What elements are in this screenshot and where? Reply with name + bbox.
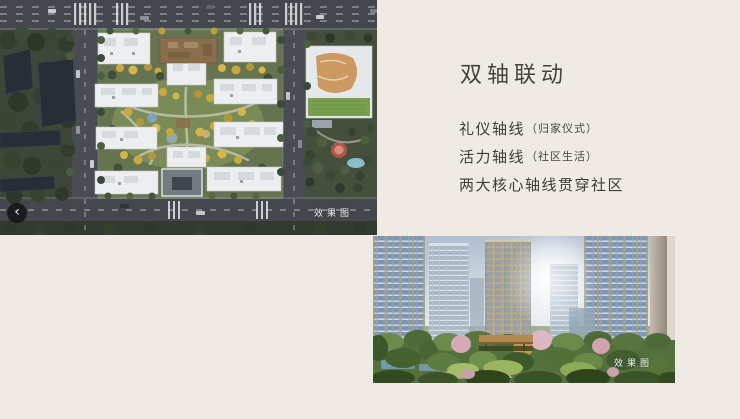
list-item-main: 活力轴线 (459, 146, 525, 167)
list-item: 礼仪轴线 （归家仪式） (459, 114, 719, 142)
list-item: 两大核心轴线贯穿社区 (459, 170, 719, 198)
street-render-image: 效果图 (373, 236, 675, 383)
watermark-label: 效果图 (614, 356, 653, 369)
list-item-main: 礼仪轴线 (459, 118, 525, 139)
list-item-sub: （归家仪式） (526, 120, 598, 136)
page: { "page": { "background_color": "#efeae4… (0, 0, 740, 419)
chevron-left-icon: ‹ (14, 205, 20, 219)
aerial-carousel-image: 效果图 ‹ (0, 0, 377, 235)
pavilion (479, 335, 533, 351)
list-item: 活力轴线 （社区生活） (459, 142, 719, 170)
feature-list: 礼仪轴线 （归家仪式） 活力轴线 （社区生活） 两大核心轴线贯穿社区 (459, 114, 719, 198)
carousel-prev-button[interactable]: ‹ (7, 203, 27, 223)
page-title: 双轴联动 (460, 57, 568, 89)
aerial-map-graphic (0, 0, 377, 235)
list-item-sub: （社区生活） (526, 148, 598, 164)
list-item-main: 两大核心轴线贯穿社区 (459, 174, 624, 195)
watermark-label: 效果图 (314, 206, 353, 219)
